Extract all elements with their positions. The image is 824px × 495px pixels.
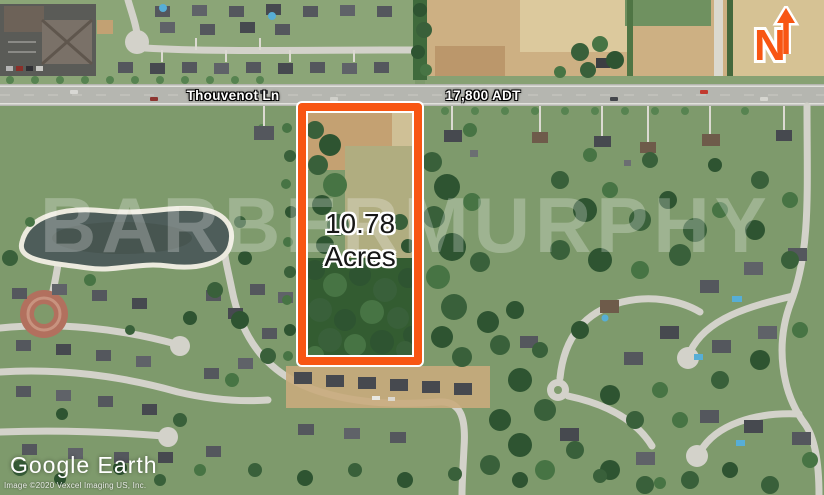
north-arrow: N N — [750, 6, 802, 70]
neighborhood-plaza — [20, 290, 68, 338]
acreage-unit: Acres — [299, 240, 421, 273]
traffic-count-label: 17,800 ADT — [420, 88, 546, 103]
road-label-thouvenot: Thouvenot Ln — [160, 88, 306, 103]
north-letter: N — [754, 21, 786, 70]
commercial-lot — [0, 4, 96, 76]
acreage-value: 10.78 — [299, 207, 421, 240]
acreage-label: 10.78 Acres — [299, 207, 421, 273]
imagery-copyright: Image ©2020 Vexcel Imaging US, Inc. — [4, 481, 146, 490]
map-stage: BARBERMURPHY Thouvenot Ln 17,800 ADT 10.… — [0, 0, 824, 495]
google-earth-logo: Google Earth — [10, 452, 158, 479]
